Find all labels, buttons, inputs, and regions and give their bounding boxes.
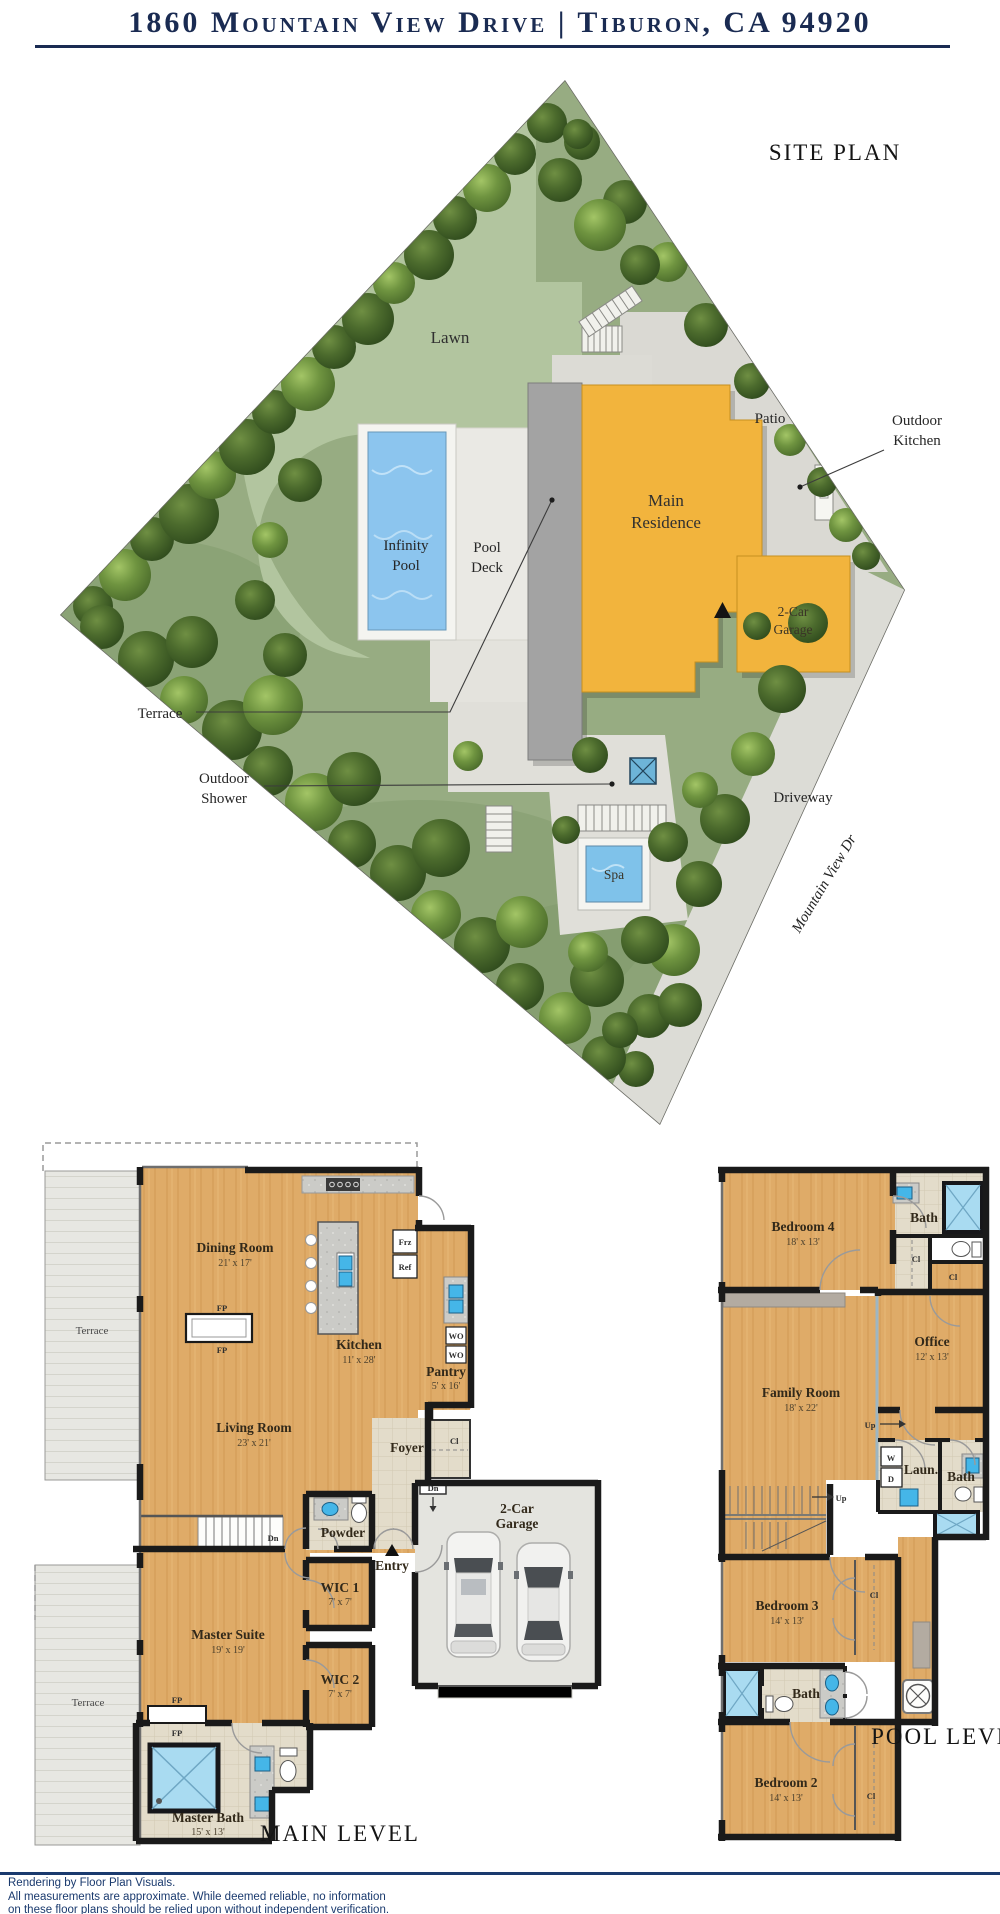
label-patio: Patio bbox=[755, 411, 786, 427]
toilet-icon bbox=[352, 1496, 367, 1523]
dims-bedroom4: 18' x 13' bbox=[786, 1237, 820, 1248]
footer-line2: All measurements are approximate. While … bbox=[8, 1891, 908, 1905]
closet-floor bbox=[930, 1262, 986, 1290]
label-pool-deck-2: Deck bbox=[471, 560, 503, 576]
footer-rule bbox=[0, 1872, 1000, 1875]
label-bath: Bath bbox=[910, 1210, 938, 1225]
car-icon bbox=[514, 1543, 573, 1661]
label-living-room: Living Room bbox=[216, 1420, 292, 1435]
label-fp: FP bbox=[172, 1695, 182, 1705]
page: 1860 Mountain View Drive | Tiburon, CA 9… bbox=[0, 0, 1000, 1914]
label-powder: Powder bbox=[321, 1525, 365, 1540]
label-driveway: Driveway bbox=[773, 790, 833, 806]
pool-level-title: POOL LEVEL bbox=[871, 1724, 1000, 1749]
tree-icon bbox=[684, 303, 728, 347]
label-lawn: Lawn bbox=[431, 328, 470, 347]
roof-terrace bbox=[528, 383, 582, 760]
label-cl: Cl bbox=[949, 1272, 958, 1282]
label-fp: FP bbox=[172, 1728, 182, 1738]
label-laundry: Laun. bbox=[904, 1462, 938, 1477]
label-dn: Dn bbox=[268, 1533, 279, 1543]
site-plan-ground bbox=[20, 80, 905, 1125]
skylight-icon bbox=[630, 758, 656, 784]
powder-sink-icon bbox=[314, 1498, 348, 1520]
tree-icon bbox=[574, 199, 626, 251]
pantry-sink bbox=[444, 1277, 468, 1323]
site-plan: SITE PLAN Lawn Infinity Pool Pool Deck M… bbox=[0, 55, 1000, 1135]
label-garage-2: Garage bbox=[496, 1516, 539, 1531]
label-office: Office bbox=[914, 1334, 949, 1349]
label-main-residence: Main bbox=[648, 491, 684, 510]
dims-living: 23' x 21' bbox=[237, 1438, 271, 1449]
toilet-icon bbox=[280, 1748, 297, 1782]
tree-icon bbox=[648, 822, 688, 862]
site-plan-title: SITE PLAN bbox=[769, 140, 901, 165]
tree-icon bbox=[494, 133, 536, 175]
title-underline bbox=[35, 45, 950, 48]
tree-icon bbox=[682, 772, 718, 808]
label-dn: Dn bbox=[428, 1483, 439, 1493]
tree-icon bbox=[243, 746, 293, 796]
main-level-title: MAIN LEVEL bbox=[260, 1821, 420, 1846]
tree-icon bbox=[527, 103, 567, 143]
car-icon bbox=[444, 1532, 503, 1657]
label-dryer: D bbox=[888, 1474, 894, 1484]
label-wic1: WIC 1 bbox=[321, 1580, 360, 1595]
tree-icon bbox=[602, 1012, 638, 1048]
dims-family: 18' x 22' bbox=[784, 1403, 818, 1414]
tree-icon bbox=[829, 508, 863, 542]
label-wo: WO bbox=[448, 1331, 464, 1341]
dims-wic1: 7' x 7' bbox=[328, 1597, 352, 1608]
ledge bbox=[723, 1293, 845, 1307]
label-infinity-pool-2: Pool bbox=[392, 558, 420, 574]
shower-icon bbox=[944, 1183, 982, 1232]
label-kitchen: Kitchen bbox=[336, 1337, 382, 1352]
ledge bbox=[913, 1622, 930, 1668]
label-outdoor-shower-2: Shower bbox=[201, 791, 247, 807]
tree-icon bbox=[758, 665, 806, 713]
label-garage-2: Garage bbox=[774, 622, 813, 637]
tree-icon bbox=[621, 916, 669, 964]
label-cl: Cl bbox=[867, 1791, 876, 1801]
label-garage: 2-Car bbox=[500, 1501, 534, 1516]
tree-icon bbox=[552, 816, 580, 844]
tree-icon bbox=[572, 737, 608, 773]
footer-line1: Rendering by Floor Plan Visuals. bbox=[8, 1877, 908, 1891]
skylight-icon bbox=[903, 1680, 933, 1713]
label-terrace: Terrace bbox=[72, 1697, 105, 1709]
toilet-icon bbox=[766, 1696, 793, 1712]
label-ref: Ref bbox=[399, 1262, 412, 1272]
label-terrace: Terrace bbox=[138, 706, 183, 722]
dims-pantry: 5' x 16' bbox=[432, 1381, 461, 1392]
label-fp: FP bbox=[217, 1303, 227, 1313]
tree-icon bbox=[252, 522, 288, 558]
dims-wic2: 7' x 7' bbox=[328, 1689, 352, 1700]
label-garage: 2-Car bbox=[778, 604, 809, 619]
tree-icon bbox=[327, 752, 381, 806]
shower-icon bbox=[724, 1669, 760, 1718]
label-family-room: Family Room bbox=[762, 1385, 841, 1400]
garage-apron bbox=[438, 1686, 572, 1698]
tree-icon bbox=[412, 819, 470, 877]
dims-master-suite: 19' x 19' bbox=[211, 1645, 245, 1656]
tree-icon bbox=[676, 861, 722, 907]
hall-floor bbox=[878, 1410, 986, 1440]
tree-icon bbox=[734, 363, 770, 399]
tree-icon bbox=[620, 245, 660, 285]
dims-master-bath: 15' x 13' bbox=[191, 1827, 225, 1838]
tree-icon bbox=[774, 424, 806, 456]
tree-icon bbox=[411, 890, 461, 940]
toilet-icon bbox=[952, 1242, 981, 1258]
sink-icon bbox=[826, 1699, 839, 1715]
label-spa: Spa bbox=[604, 867, 624, 882]
label-master-bath: Master Bath bbox=[172, 1810, 245, 1825]
tree-icon bbox=[743, 612, 771, 640]
tree-icon bbox=[563, 119, 593, 149]
laundry-sink-icon bbox=[900, 1489, 918, 1506]
tree-icon bbox=[278, 458, 322, 502]
label-outdoor-kitchen-2: Kitchen bbox=[893, 433, 941, 449]
tree-icon bbox=[235, 580, 275, 620]
dims-bedroom2: 14' x 13' bbox=[769, 1793, 803, 1804]
shower-icon bbox=[150, 1745, 218, 1811]
fireplace-icon bbox=[148, 1706, 206, 1723]
label-fp: FP bbox=[217, 1345, 227, 1355]
footer-disclaimer: Rendering by Floor Plan Visuals. All mea… bbox=[8, 1877, 908, 1914]
tree-icon bbox=[118, 631, 174, 687]
tree-icon bbox=[496, 963, 544, 1011]
tree-icon bbox=[263, 633, 307, 677]
label-cl: Cl bbox=[912, 1254, 921, 1264]
label-outdoor-shower: Outdoor bbox=[199, 771, 249, 787]
label-bath: Bath bbox=[947, 1469, 975, 1484]
shower-icon bbox=[935, 1512, 978, 1537]
label-wo: WO bbox=[448, 1350, 464, 1360]
page-title: 1860 Mountain View Drive | Tiburon, CA 9… bbox=[0, 6, 1000, 40]
label-entry: Entry bbox=[375, 1558, 409, 1573]
vanity bbox=[820, 1670, 845, 1718]
label-outdoor-kitchen: Outdoor bbox=[892, 413, 942, 429]
label-up: Up bbox=[865, 1420, 876, 1430]
label-pantry: Pantry bbox=[426, 1364, 466, 1379]
tree-icon bbox=[453, 741, 483, 771]
label-bedroom4: Bedroom 4 bbox=[771, 1219, 834, 1234]
label-washer: W bbox=[887, 1453, 896, 1463]
street-name: Mountain View Dr bbox=[789, 832, 861, 937]
tree-icon bbox=[166, 616, 218, 668]
sink-icon bbox=[255, 1797, 270, 1811]
tree-icon bbox=[496, 896, 548, 948]
label-cl: Cl bbox=[450, 1436, 459, 1446]
tree-icon bbox=[328, 820, 376, 868]
tree-icon bbox=[568, 932, 608, 972]
floor-plan-main-level: Terrace Terrace Dining Room 21' x 17' Ki… bbox=[0, 1130, 620, 1860]
dims-bedroom3: 14' x 13' bbox=[770, 1616, 804, 1627]
label-foyer: Foyer bbox=[390, 1440, 424, 1455]
closet-nook bbox=[430, 1420, 470, 1478]
floor-plan-pool-level: Bedroom 4 18' x 13' Bath Cl Cl Office 12… bbox=[620, 1130, 1000, 1860]
tree-icon bbox=[243, 675, 303, 735]
label-bedroom3: Bedroom 3 bbox=[755, 1598, 818, 1613]
label-main-residence-2: Residence bbox=[631, 513, 701, 532]
label-cl: Cl bbox=[870, 1590, 879, 1600]
label-dining-room: Dining Room bbox=[197, 1240, 275, 1255]
label-up: Up bbox=[836, 1493, 847, 1503]
label-wic2: WIC 2 bbox=[321, 1672, 360, 1687]
dims-dining: 21' x 17' bbox=[218, 1258, 252, 1269]
footer-line3: on these floor plans should be relied up… bbox=[8, 1904, 908, 1914]
label-infinity-pool: Infinity bbox=[384, 538, 429, 554]
tree-icon bbox=[731, 732, 775, 776]
tree-icon bbox=[658, 983, 702, 1027]
label-pool-deck: Pool bbox=[473, 540, 501, 556]
office-floor bbox=[878, 1292, 986, 1410]
infinity-pool bbox=[368, 432, 446, 630]
label-terrace: Terrace bbox=[76, 1325, 109, 1337]
fireplace-icon bbox=[186, 1314, 252, 1342]
label-master-suite: Master Suite bbox=[191, 1627, 265, 1642]
label-frz: Frz bbox=[399, 1237, 412, 1247]
label-bedroom2: Bedroom 2 bbox=[754, 1775, 817, 1790]
dims-office: 12' x 13' bbox=[915, 1352, 949, 1363]
sink-icon bbox=[255, 1757, 270, 1771]
dims-kitchen: 11' x 28' bbox=[342, 1355, 375, 1366]
sink-icon bbox=[826, 1675, 839, 1691]
stove-icon bbox=[326, 1178, 360, 1191]
label-bath: Bath bbox=[792, 1686, 820, 1701]
tree-icon bbox=[538, 158, 582, 202]
tree-icon bbox=[80, 605, 124, 649]
